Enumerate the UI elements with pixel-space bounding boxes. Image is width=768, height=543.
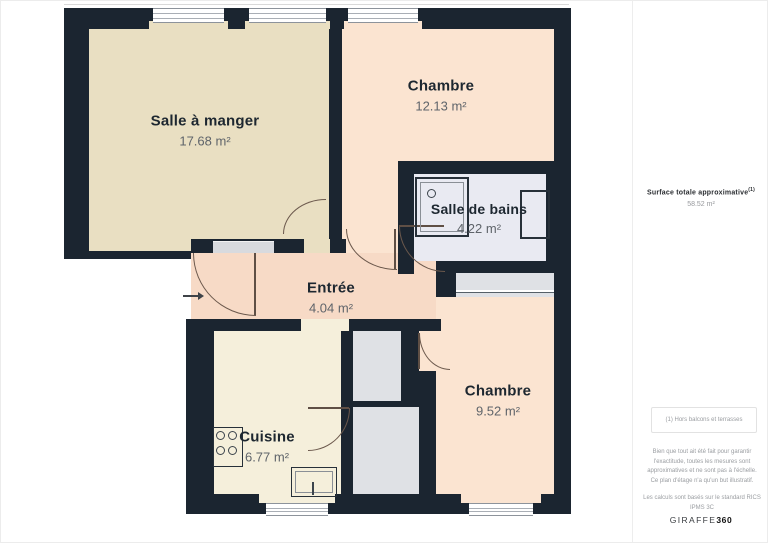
brand-suffix: 360 — [716, 515, 732, 525]
room-area: 6.77 m² — [239, 449, 295, 465]
entry-door-leaf — [254, 253, 256, 315]
passage-opening — [213, 241, 274, 253]
window-sill — [461, 494, 541, 503]
wardrobe-slide-door — [456, 292, 554, 293]
total-surface-footnote-marker: (1) — [748, 187, 755, 193]
room-area: 9.52 m² — [465, 403, 531, 419]
wall-dining-bedroom — [329, 29, 342, 253]
total-surface-text: Surface totale approximative — [647, 189, 748, 196]
room-name: Chambre — [465, 383, 531, 402]
wall-kitchen-left — [186, 319, 214, 514]
dining-door-opening — [304, 239, 330, 253]
burner-icon — [228, 446, 237, 455]
total-surface-label: Surface totale approximative(1) — [635, 187, 767, 196]
room-area: 4.04 m² — [307, 300, 355, 316]
room-label-bathroom: Salle de bains 4.22 m² — [431, 201, 527, 237]
room-name: Entrée — [307, 280, 355, 299]
sidebar-divider — [632, 1, 633, 542]
total-surface-value: 58.52 m² — [635, 201, 767, 208]
brand-name: GIRAFFE — [670, 515, 717, 525]
wall-bedroom2-left — [419, 371, 436, 494]
room-area: 4.22 m² — [431, 221, 527, 237]
entrance-arrow-icon — [183, 295, 199, 297]
footnote-box: (1) Hors balcons et terrasses — [651, 407, 757, 433]
room-label-bedroom2: Chambre 9.52 m² — [465, 383, 531, 420]
kitchen-door-leaf — [308, 407, 349, 409]
floor-plan: Salle à manger 17.68 m² Chambre 12.13 m²… — [1, 1, 633, 543]
disclaimer-text: Bien que tout ait été fait pour garantir… — [643, 448, 761, 486]
burner-icon — [216, 431, 225, 440]
wardrobe — [456, 273, 554, 297]
room-label-kitchen: Cuisine 6.77 m² — [239, 429, 295, 466]
shower-drain-icon — [427, 189, 436, 198]
bedroom2-door-leaf — [418, 333, 420, 369]
room-name: Chambre — [408, 78, 474, 97]
room-area: 17.68 m² — [151, 133, 260, 149]
wall-dining-bottom — [64, 251, 191, 259]
window — [249, 8, 326, 23]
kitchen-sink-tap — [312, 482, 314, 495]
wall-bathroom-bottom — [442, 261, 554, 273]
wall-closet-divider — [353, 401, 419, 407]
wall-closet-a-right — [401, 331, 419, 401]
standard-text: Les calculs sont basés sur le standard R… — [643, 494, 761, 513]
window — [348, 8, 418, 23]
entrance-arrowhead-icon — [198, 292, 204, 300]
giraffe360-logo: GIRAFFE360 — [635, 515, 767, 525]
room-label-dining: Salle à manger 17.68 m² — [151, 113, 260, 150]
kitchen-sink — [291, 467, 337, 497]
wall-bathroom-top — [398, 161, 569, 174]
floorplan-page: Salle à manger 17.68 m² Chambre 12.13 m²… — [0, 0, 768, 543]
room-label-bedroom1: Chambre 12.13 m² — [408, 78, 474, 115]
facade-line — [64, 4, 569, 5]
burner-icon — [216, 446, 225, 455]
closet-b — [353, 407, 419, 494]
wall-entree-bottom-east — [349, 319, 441, 331]
room-label-entree: Entrée 4.04 m² — [307, 280, 355, 317]
footnote-text: (1) Hors balcons et terrasses — [665, 417, 742, 423]
room-name: Cuisine — [239, 429, 295, 448]
room-area: 12.13 m² — [408, 98, 474, 114]
closet-a — [353, 331, 401, 401]
window — [469, 503, 533, 516]
window — [266, 503, 328, 516]
bedroom1-door-leaf — [394, 229, 396, 269]
room-name: Salle de bains — [431, 201, 527, 219]
window — [153, 8, 224, 23]
wall-left — [64, 8, 89, 259]
burner-icon — [228, 431, 237, 440]
room-name: Salle à manger — [151, 113, 260, 132]
kitchen-sink-basin — [295, 471, 333, 493]
